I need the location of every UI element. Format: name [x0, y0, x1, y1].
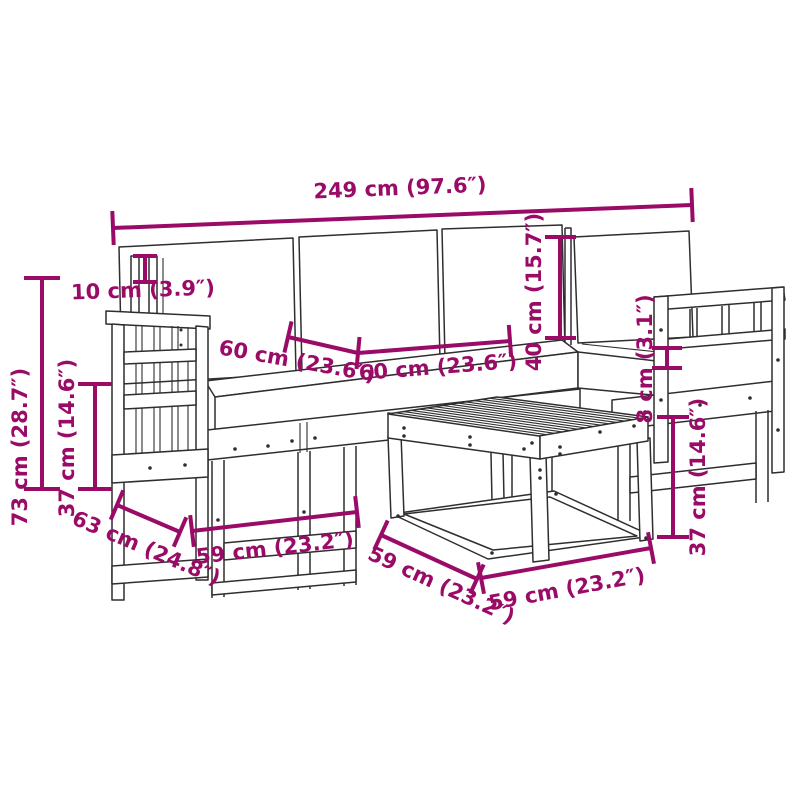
dim-seat-frame-height-left-label: 37 cm (14.6″)	[55, 359, 79, 518]
coffee-table	[388, 397, 653, 562]
dim-seat-frame-height-left: 37 cm (14.6″)	[55, 359, 112, 518]
product-dimension-diagram: 249 cm (97.6″) 10 cm (3.9″) 73 cm (28.7″…	[0, 0, 800, 800]
diagram-svg: 249 cm (97.6″) 10 cm (3.9″) 73 cm (28.7″…	[0, 0, 800, 800]
dim-module-front-width-label: 59 cm (23.2″)	[195, 527, 355, 569]
dim-backrest-post-height-label: 10 cm (3.9″)	[71, 275, 216, 304]
dim-table-width-label: 59 cm (23.2″)	[487, 563, 647, 615]
dim-seat-cushion-thickness-label: 8 cm (3.1″)	[633, 294, 657, 423]
dim-module-front-width: 59 cm (23.2″)	[190, 496, 359, 569]
dim-table-height-label: 37 cm (14.6″)	[686, 398, 710, 557]
dim-overall-height: 73 cm (28.7″)	[8, 278, 60, 526]
dim-back-cushion-height-label: 40 cm (15.7″)	[522, 213, 546, 372]
dim-overall-height-label: 73 cm (28.7″)	[8, 368, 32, 527]
dim-overall-width-label: 249 cm (97.6″)	[313, 173, 487, 204]
